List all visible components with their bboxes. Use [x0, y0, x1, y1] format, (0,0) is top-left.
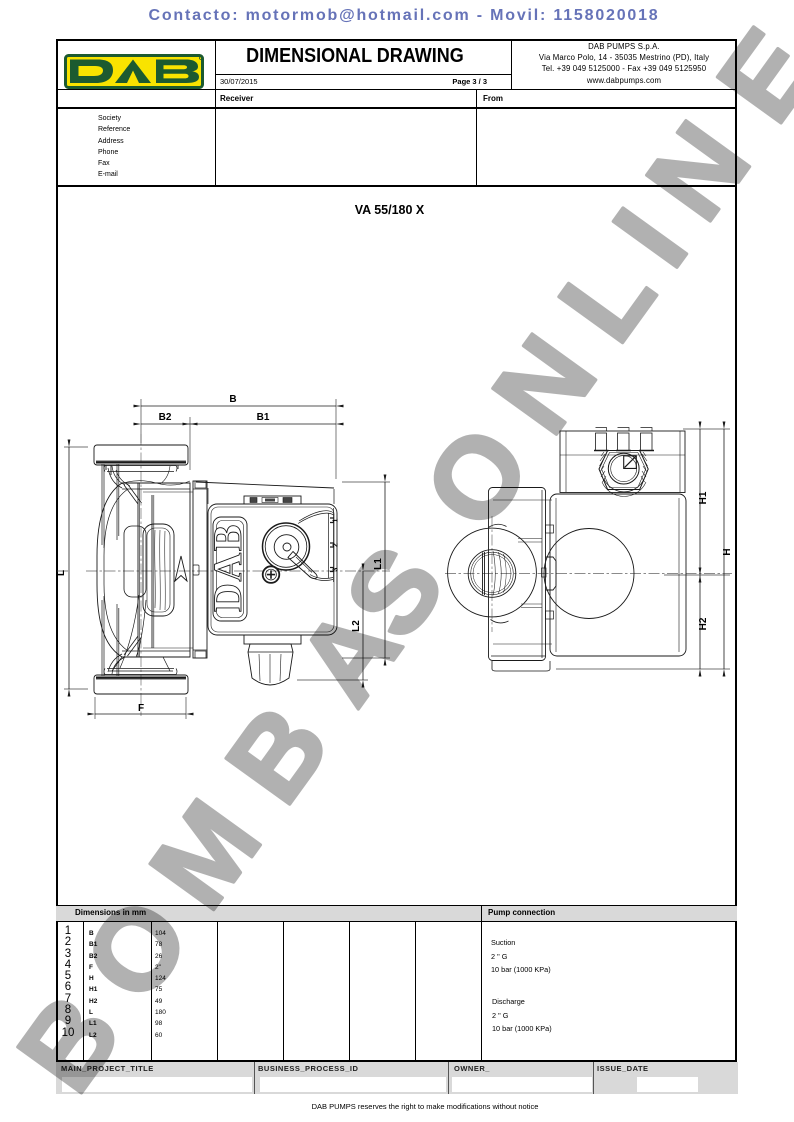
svg-text:L1: L1 — [373, 558, 384, 570]
svg-text:3: 3 — [333, 567, 340, 571]
svg-text:1: 1 — [333, 518, 340, 522]
svg-text:DAB: DAB — [205, 523, 250, 612]
svg-text:H: H — [722, 548, 733, 555]
svg-text:B: B — [229, 394, 236, 405]
svg-text:2: 2 — [333, 543, 340, 547]
svg-text:B2: B2 — [159, 412, 172, 423]
svg-text:H2: H2 — [698, 617, 709, 630]
svg-text:B1: B1 — [257, 412, 270, 423]
svg-text:F: F — [138, 703, 144, 714]
svg-text:L: L — [56, 570, 67, 576]
svg-text:H1: H1 — [698, 491, 709, 504]
svg-text:L2: L2 — [351, 620, 362, 632]
